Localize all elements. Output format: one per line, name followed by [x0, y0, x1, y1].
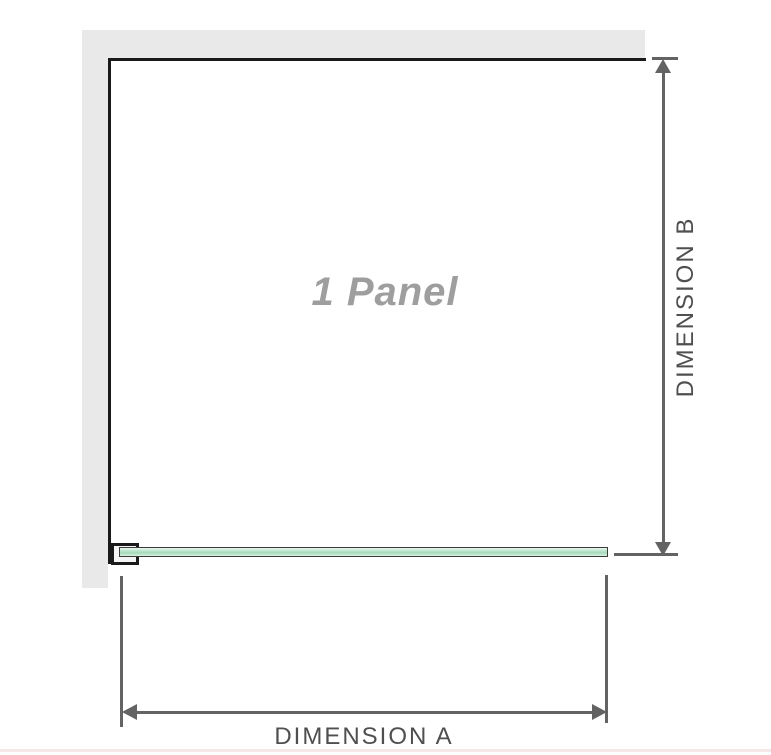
dimension-a-extension-right: [605, 575, 608, 723]
dimension-a-arrow-left-icon: [122, 704, 137, 720]
dimension-b-arrow-down-icon: [655, 542, 671, 556]
panel-label: 1 Panel: [285, 270, 485, 315]
panel-left-edge: [108, 58, 111, 564]
dimension-a-label: DIMENSION A: [274, 723, 453, 751]
dimension-b-arrow-up-icon: [655, 59, 671, 73]
dimension-a-arrow-right-icon: [592, 704, 607, 720]
dimension-diagram: 1 Panel DIMENSION B DIMENSION A: [0, 0, 771, 755]
dimension-b-label: DIMENSION B: [672, 217, 700, 398]
wall-top-strip: [82, 30, 645, 58]
dimension-b-line: [662, 62, 665, 552]
panel-top-edge: [108, 58, 646, 61]
bottom-rule: [0, 749, 771, 752]
dimension-a-line: [130, 711, 598, 714]
glass-panel-bar: [119, 547, 608, 557]
wall-left-strip: [82, 30, 108, 588]
